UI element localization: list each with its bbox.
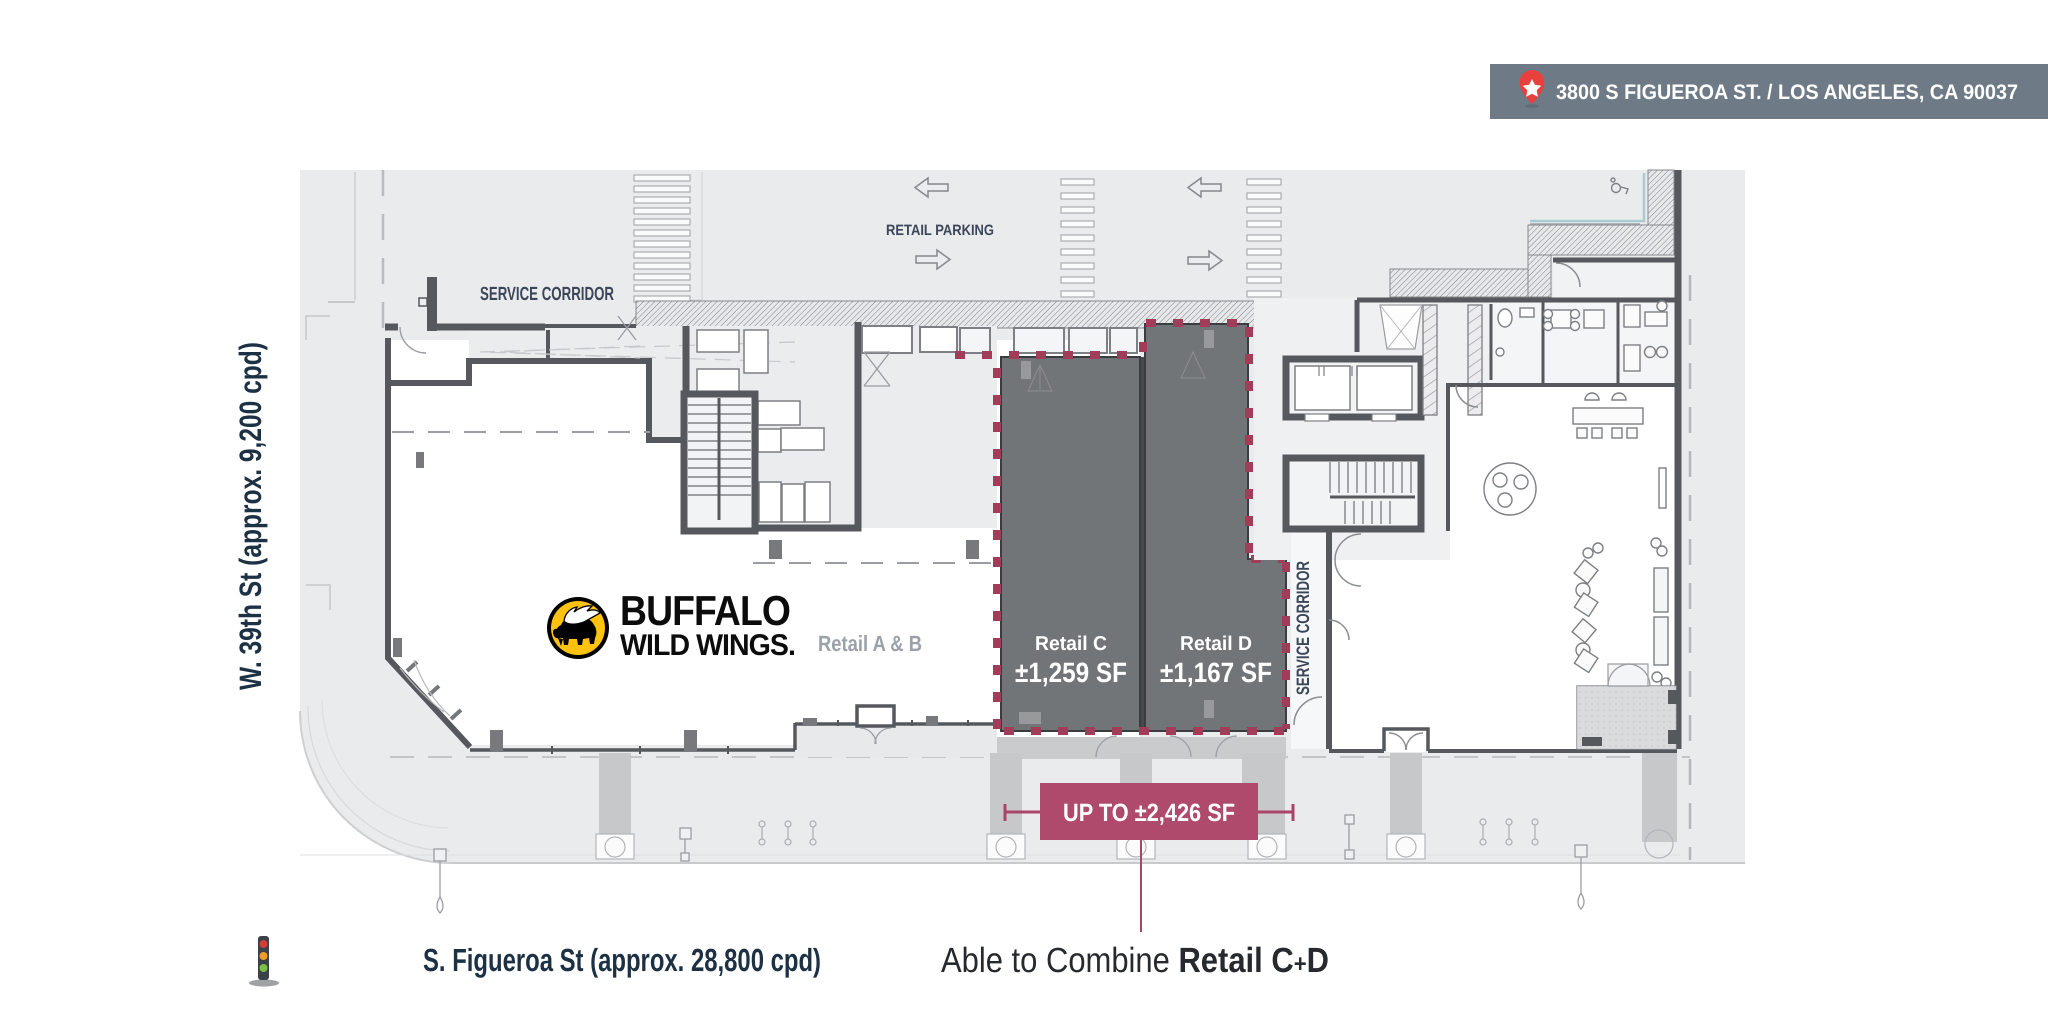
svg-text:Retail A & B: Retail A & B [818,631,922,656]
svg-text:3800 S FIGUEROA ST. / LOS ANGE: 3800 S FIGUEROA ST. / LOS ANGELES, CA 90… [1556,81,2018,104]
svg-text:BUFFALO: BUFFALO [620,587,790,634]
svg-text:WILD WINGS.: WILD WINGS. [620,629,795,662]
svg-text:Retail C: Retail C [1035,633,1107,655]
svg-text:S. Figueroa St (approx. 28,800: S. Figueroa St (approx. 28,800 cpd) [423,942,821,978]
svg-text:SERVICE CORRIDOR: SERVICE CORRIDOR [480,284,614,305]
svg-text:W. 39th St (approx. 9,200 cpd): W. 39th St (approx. 9,200 cpd) [233,342,268,690]
svg-text:RETAIL PARKING: RETAIL PARKING [886,222,994,239]
svg-text:UP TO ±2,426 SF: UP TO ±2,426 SF [1063,799,1235,827]
svg-text:Retail D: Retail D [1180,633,1252,655]
svg-text:±1,167 SF: ±1,167 SF [1160,657,1272,688]
svg-text:±1,259 SF: ±1,259 SF [1015,657,1127,688]
svg-text:SERVICE CORRIDOR: SERVICE CORRIDOR [1293,561,1313,695]
svg-text:Able to Combine Retail C+D: Able to Combine Retail C+D [941,941,1329,980]
